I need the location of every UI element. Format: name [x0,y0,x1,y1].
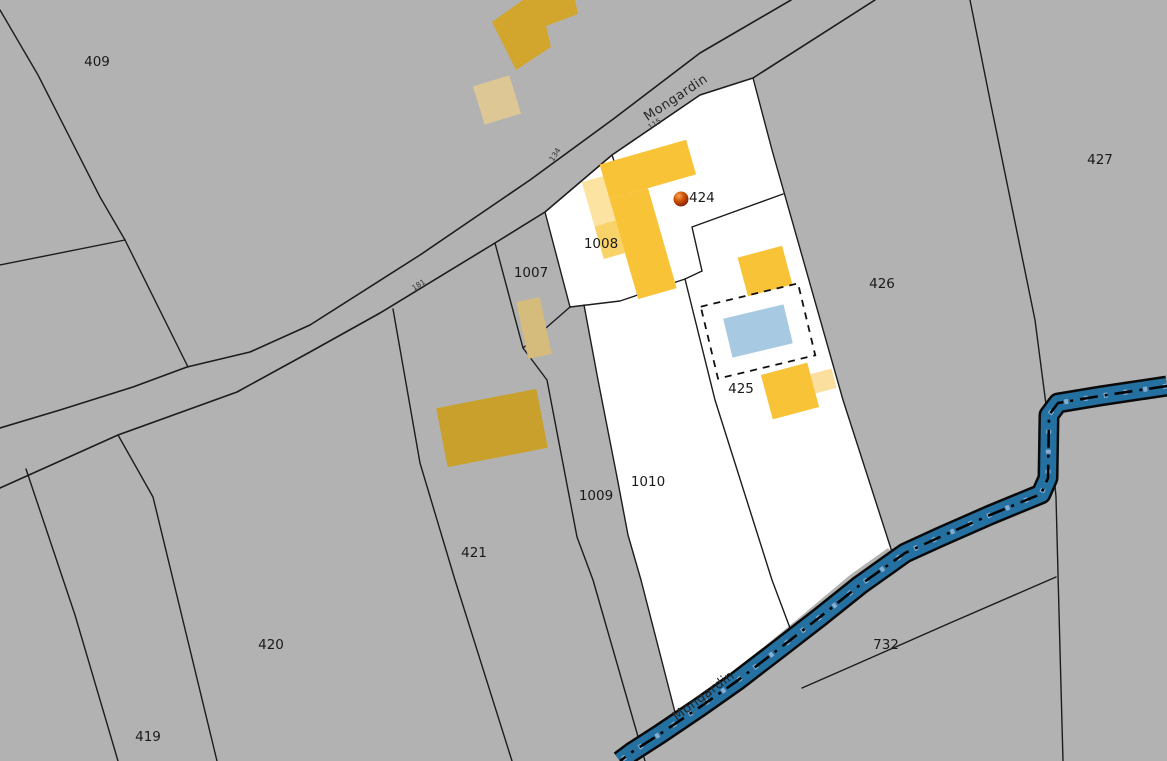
parcel-label-732: 732 [873,637,899,653]
map-canvas[interactable]: 409 427 1008 1007 426 425 1010 1009 421 … [0,0,1167,761]
parcel-label-420: 420 [258,637,284,653]
parcel-label-1007: 1007 [514,265,548,281]
parcel-label-421: 421 [461,545,487,561]
parcel-label-426: 426 [869,276,895,292]
cadastral-map[interactable]: 409 427 1008 1007 426 425 1010 1009 421 … [0,0,1167,761]
parcel-label-425: 425 [728,381,754,397]
parcel-label-1010: 1010 [631,474,665,490]
location-marker-424[interactable] [674,192,689,207]
parcel-label-1008: 1008 [584,236,618,252]
parcel-label-409: 409 [84,54,110,70]
parcel-label-419: 419 [135,729,161,745]
parcel-label-1009: 1009 [579,488,613,504]
parcel-label-424: 424 [689,190,715,206]
parcel-label-427: 427 [1087,152,1113,168]
map-background [0,0,1167,761]
